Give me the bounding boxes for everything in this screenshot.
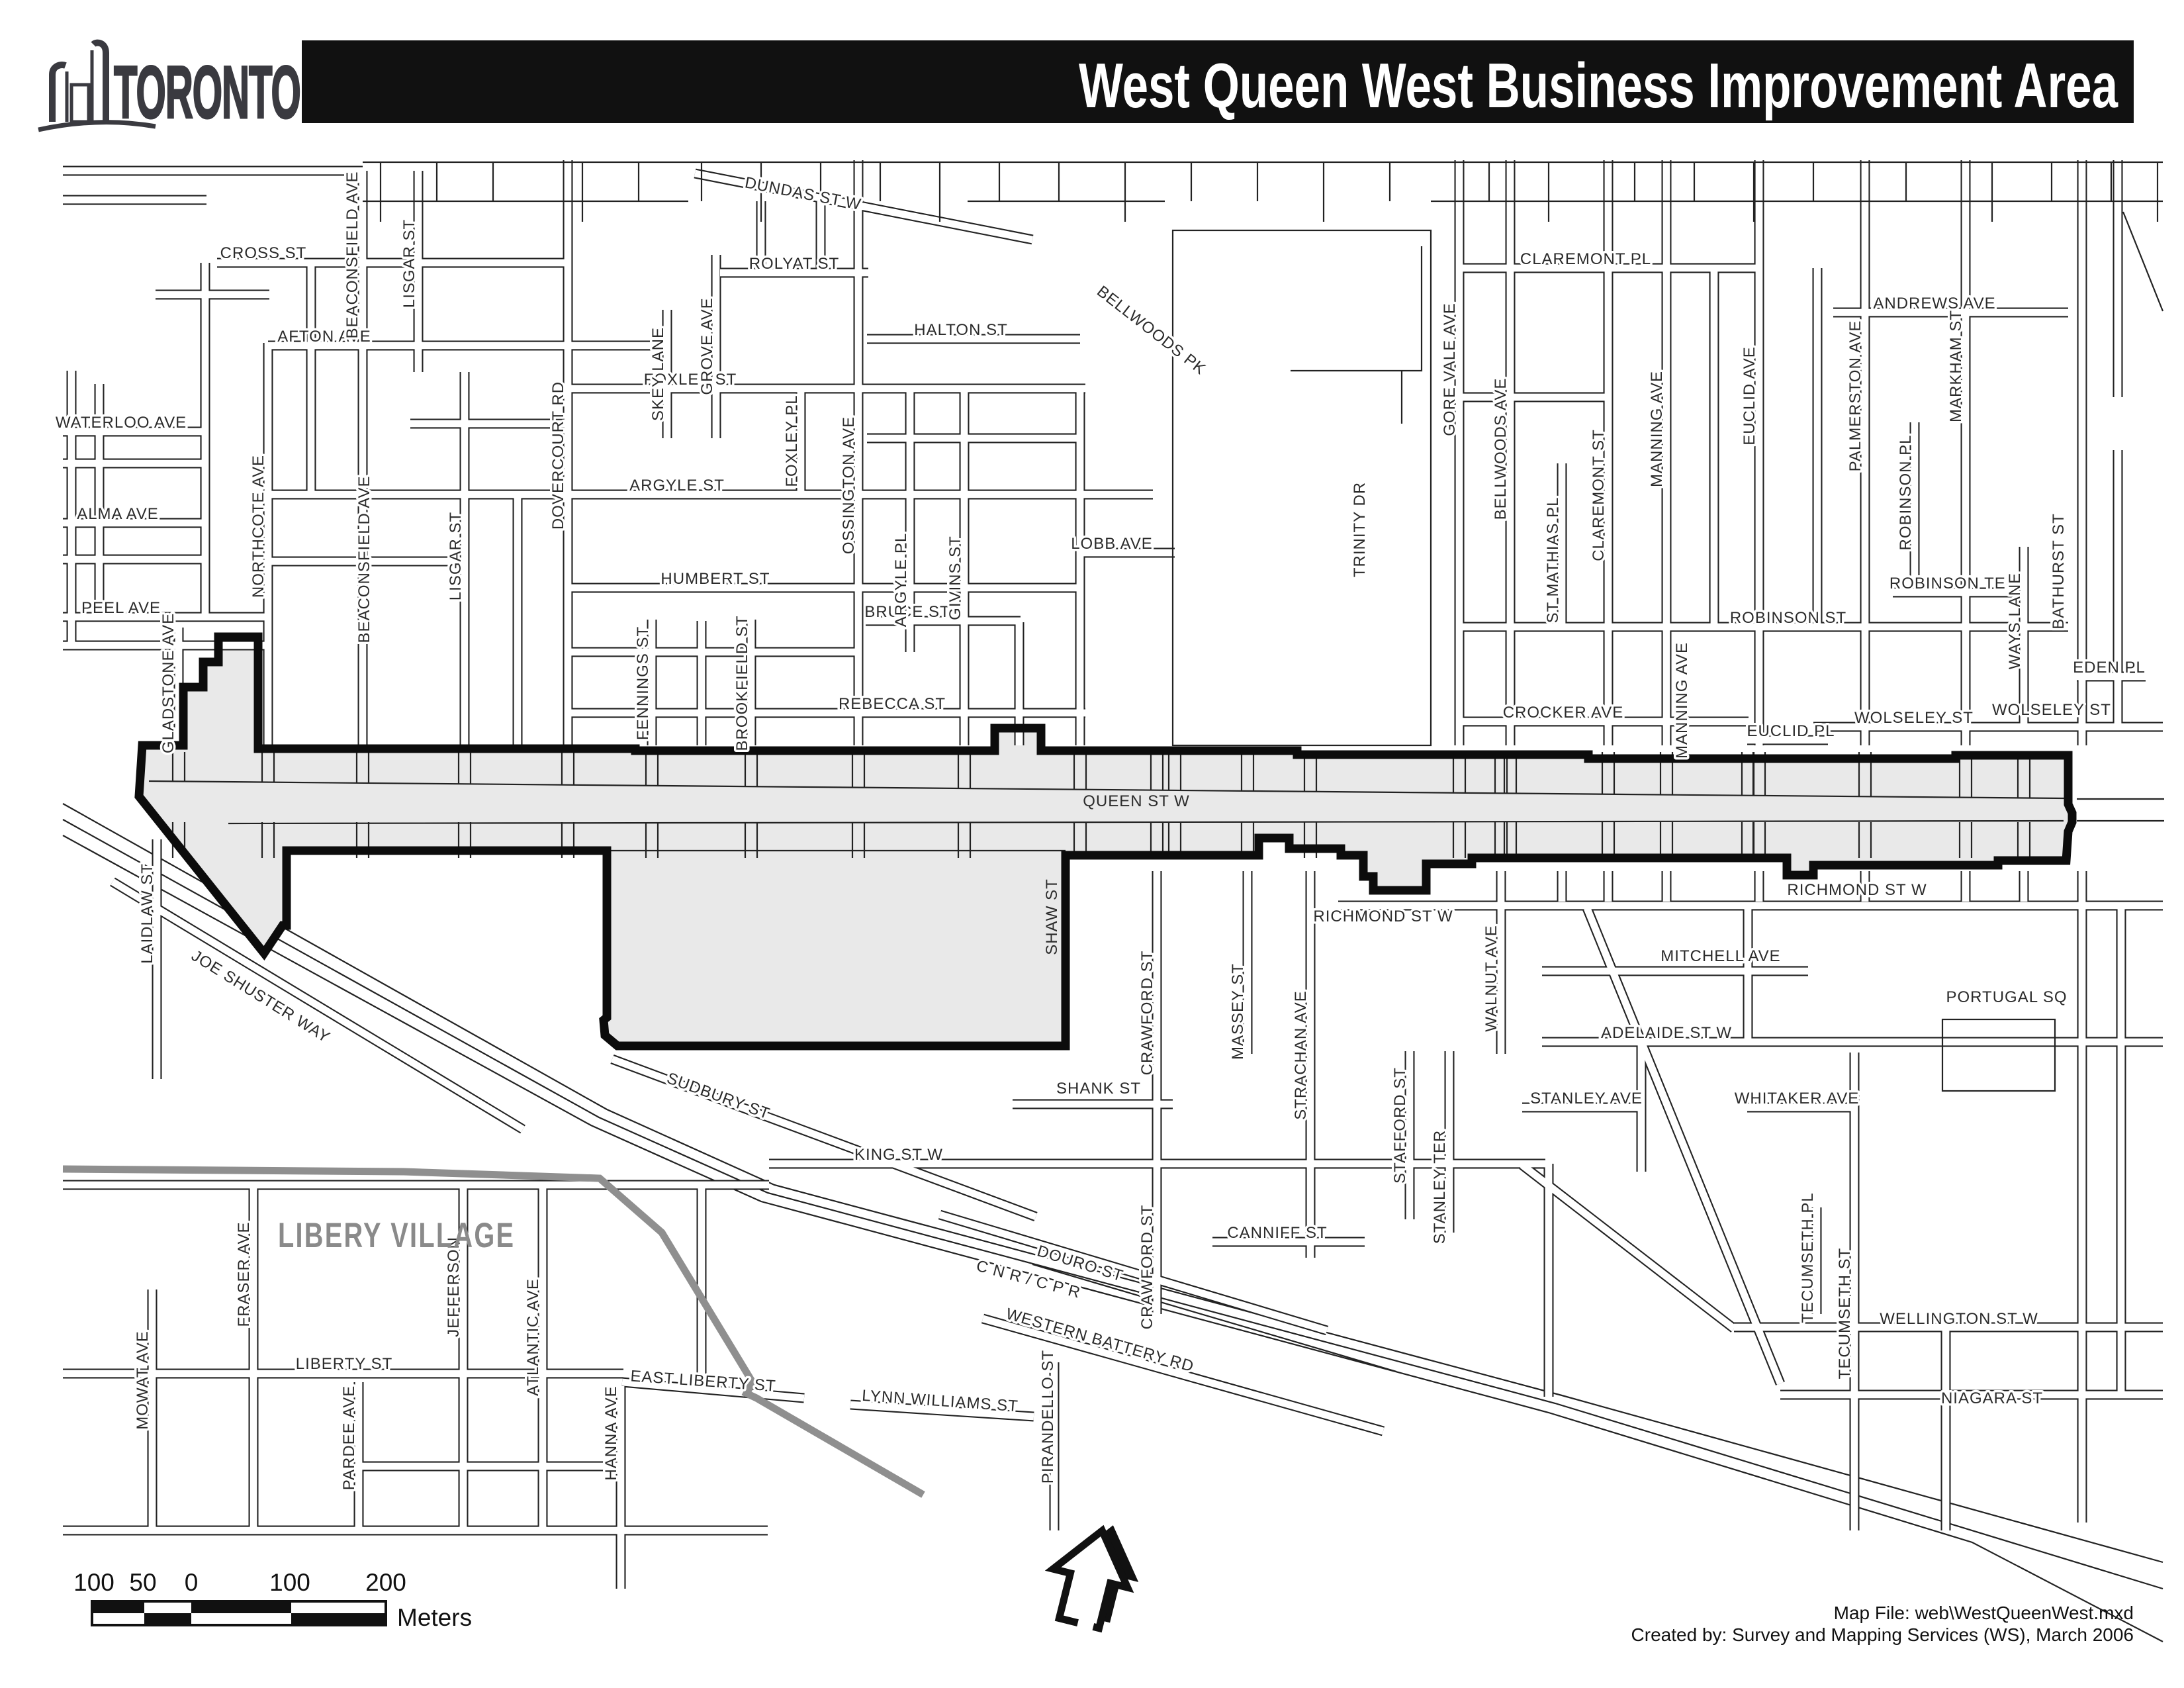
svg-text:MARKHAM ST: MARKHAM ST	[1947, 310, 1965, 422]
svg-text:WAYS LANE: WAYS LANE	[2006, 573, 2024, 669]
svg-text:CLAREMONT PL: CLAREMONT PL	[1520, 250, 1651, 268]
svg-text:SHANK ST: SHANK ST	[1056, 1080, 1141, 1098]
svg-text:OSSINGTON AVE: OSSINGTON AVE	[840, 416, 858, 554]
svg-text:ALMA AVE: ALMA AVE	[77, 505, 159, 523]
svg-text:ADELAIDE ST W: ADELAIDE ST W	[1601, 1024, 1732, 1042]
svg-text:BEACONSFIELD AVE: BEACONSFIELD AVE	[355, 476, 373, 643]
svg-text:100: 100	[73, 1569, 114, 1596]
svg-text:CROSS ST: CROSS ST	[220, 244, 307, 262]
svg-text:TECUMSETH PL: TECUMSETH PL	[1799, 1192, 1817, 1323]
svg-text:WOLSELEY ST: WOLSELEY ST	[1854, 709, 1974, 727]
svg-text:ST MATHIAS PL: ST MATHIAS PL	[1544, 497, 1562, 624]
svg-text:RICHMOND ST W: RICHMOND ST W	[1787, 881, 1927, 899]
svg-text:STAFFORD ST: STAFFORD ST	[1391, 1067, 1409, 1184]
svg-text:REBECCA ST: REBECCA ST	[839, 695, 946, 713]
svg-text:LIBERY VILLAGE: LIBERY VILLAGE	[278, 1215, 515, 1254]
svg-text:ROBINSON PL: ROBINSON PL	[1897, 434, 1915, 550]
svg-text:PORTUGAL SQ: PORTUGAL SQ	[1946, 988, 2067, 1006]
svg-text:NIAGARA ST: NIAGARA ST	[1941, 1389, 2043, 1407]
svg-text:ANDREWS AVE: ANDREWS AVE	[1873, 295, 1995, 312]
svg-text:TORONTO: TORONTO	[114, 50, 300, 133]
svg-text:HANNA AVE: HANNA AVE	[602, 1385, 620, 1480]
svg-text:QUEEN ST W: QUEEN ST W	[1083, 792, 1190, 810]
svg-text:200: 200	[365, 1569, 406, 1596]
svg-text:CROCKER AVE: CROCKER AVE	[1503, 704, 1624, 722]
svg-text:BATHURST ST: BATHURST ST	[2050, 513, 2068, 629]
svg-text:ROBINSON ST: ROBINSON ST	[1730, 609, 1846, 627]
svg-text:WATERLOO AVE: WATERLOO AVE	[56, 414, 187, 432]
svg-text:PALMERSTON AVE: PALMERSTON AVE	[1846, 320, 1864, 472]
svg-text:PARDEE AVE: PARDEE AVE	[340, 1385, 358, 1491]
svg-text:50: 50	[129, 1569, 156, 1596]
svg-text:GROVE AVE: GROVE AVE	[698, 297, 716, 395]
svg-text:GLADSTONE AVE: GLADSTONE AVE	[159, 613, 177, 753]
svg-text:PEEL AVE: PEEL AVE	[81, 599, 161, 617]
svg-text:ROBINSON TER: ROBINSON TER	[1889, 575, 2018, 592]
svg-text:DOVERCOURT RD: DOVERCOURT RD	[549, 381, 567, 530]
svg-text:STANLEY AVE: STANLEY AVE	[1530, 1090, 1643, 1107]
svg-text:LIBERTY ST: LIBERTY ST	[296, 1355, 393, 1373]
svg-text:WOLSELEY ST: WOLSELEY ST	[1992, 701, 2111, 719]
svg-text:BROOKFIELD ST: BROOKFIELD ST	[733, 615, 751, 751]
svg-text:100: 100	[269, 1569, 310, 1596]
svg-text:Map File: web\WestQueenWest.mx: Map File: web\WestQueenWest.mxd	[1834, 1603, 2134, 1623]
svg-text:ATLANTIC AVE: ATLANTIC AVE	[524, 1278, 542, 1396]
svg-text:CRAWFORD ST: CRAWFORD ST	[1138, 951, 1156, 1076]
svg-text:FENNINGS ST: FENNINGS ST	[634, 626, 652, 740]
svg-text:TECUMSETH ST: TECUMSETH ST	[1836, 1248, 1854, 1380]
svg-text:PIRANDELLO ST: PIRANDELLO ST	[1039, 1350, 1057, 1483]
svg-text:EDEN PL: EDEN PL	[2073, 659, 2146, 677]
svg-text:STRACHAN AVE: STRACHAN AVE	[1292, 990, 1310, 1120]
svg-text:WHITAKER AVE: WHITAKER AVE	[1735, 1090, 1859, 1107]
svg-text:KING ST W: KING ST W	[854, 1146, 943, 1164]
svg-text:EUCLID PL: EUCLID PL	[1747, 722, 1835, 740]
svg-text:FRASER AVE: FRASER AVE	[235, 1222, 253, 1327]
svg-text:MITCHELL AVE: MITCHELL AVE	[1661, 947, 1780, 965]
svg-text:ROLYAT ST: ROLYAT ST	[749, 255, 840, 273]
svg-text:STANLEY TER: STANLEY TER	[1431, 1130, 1449, 1244]
svg-text:GORE VALE AVE: GORE VALE AVE	[1441, 303, 1459, 436]
svg-text:NORTHCOTE AVE: NORTHCOTE AVE	[250, 455, 267, 598]
svg-text:MOWAT AVE: MOWAT AVE	[134, 1331, 152, 1429]
svg-text:EUCLID AVE: EUCLID AVE	[1741, 346, 1758, 445]
svg-text:LISGAR ST: LISGAR ST	[447, 512, 465, 600]
svg-text:LOBB AVE: LOBB AVE	[1071, 535, 1153, 553]
svg-text:BEACONSFIELD AVE: BEACONSFIELD AVE	[343, 171, 361, 339]
svg-text:Meters: Meters	[397, 1604, 472, 1631]
svg-text:CLAREMONT ST: CLAREMONT ST	[1590, 429, 1608, 561]
svg-text:RICHMOND ST W: RICHMOND ST W	[1313, 908, 1453, 925]
svg-text:0: 0	[185, 1569, 199, 1596]
svg-text:ARGYLE ST: ARGYLE ST	[629, 477, 725, 494]
svg-text:CANNIFF ST: CANNIFF ST	[1227, 1224, 1327, 1242]
svg-text:LISGAR ST: LISGAR ST	[400, 219, 418, 308]
svg-text:WELLINGTON ST W: WELLINGTON ST W	[1880, 1310, 2038, 1328]
svg-text:ARGYLE PL: ARGYLE PL	[892, 533, 910, 627]
svg-text:Created by: Survey and Mapping: Created by: Survey and Mapping Services …	[1631, 1624, 2134, 1645]
svg-text:LAIDLAW ST: LAIDLAW ST	[138, 863, 156, 964]
svg-text:BELLWOODS AVE: BELLWOODS AVE	[1492, 378, 1510, 520]
svg-text:CRAWFORD ST: CRAWFORD ST	[1138, 1205, 1156, 1330]
svg-text:FOXLEY PL: FOXLEY PL	[783, 395, 801, 487]
svg-text:MANNING AVE: MANNING AVE	[1673, 642, 1691, 759]
svg-text:HUMBERT ST: HUMBERT ST	[660, 570, 770, 588]
svg-text:SHAW ST: SHAW ST	[1043, 878, 1061, 955]
svg-text:GIVINS ST: GIVINS ST	[946, 536, 964, 620]
svg-text:SKEY LANE: SKEY LANE	[649, 327, 667, 421]
svg-text:MANNING AVE: MANNING AVE	[1648, 371, 1666, 487]
svg-text:WALNUT AVE: WALNUT AVE	[1482, 925, 1500, 1032]
svg-text:West Queen West Business Impro: West Queen West Business Improvement Are…	[1079, 50, 2118, 121]
svg-text:TRINITY DR: TRINITY DR	[1351, 482, 1369, 577]
svg-text:HALTON ST: HALTON ST	[914, 321, 1007, 339]
svg-text:MASSEY ST: MASSEY ST	[1229, 963, 1247, 1060]
